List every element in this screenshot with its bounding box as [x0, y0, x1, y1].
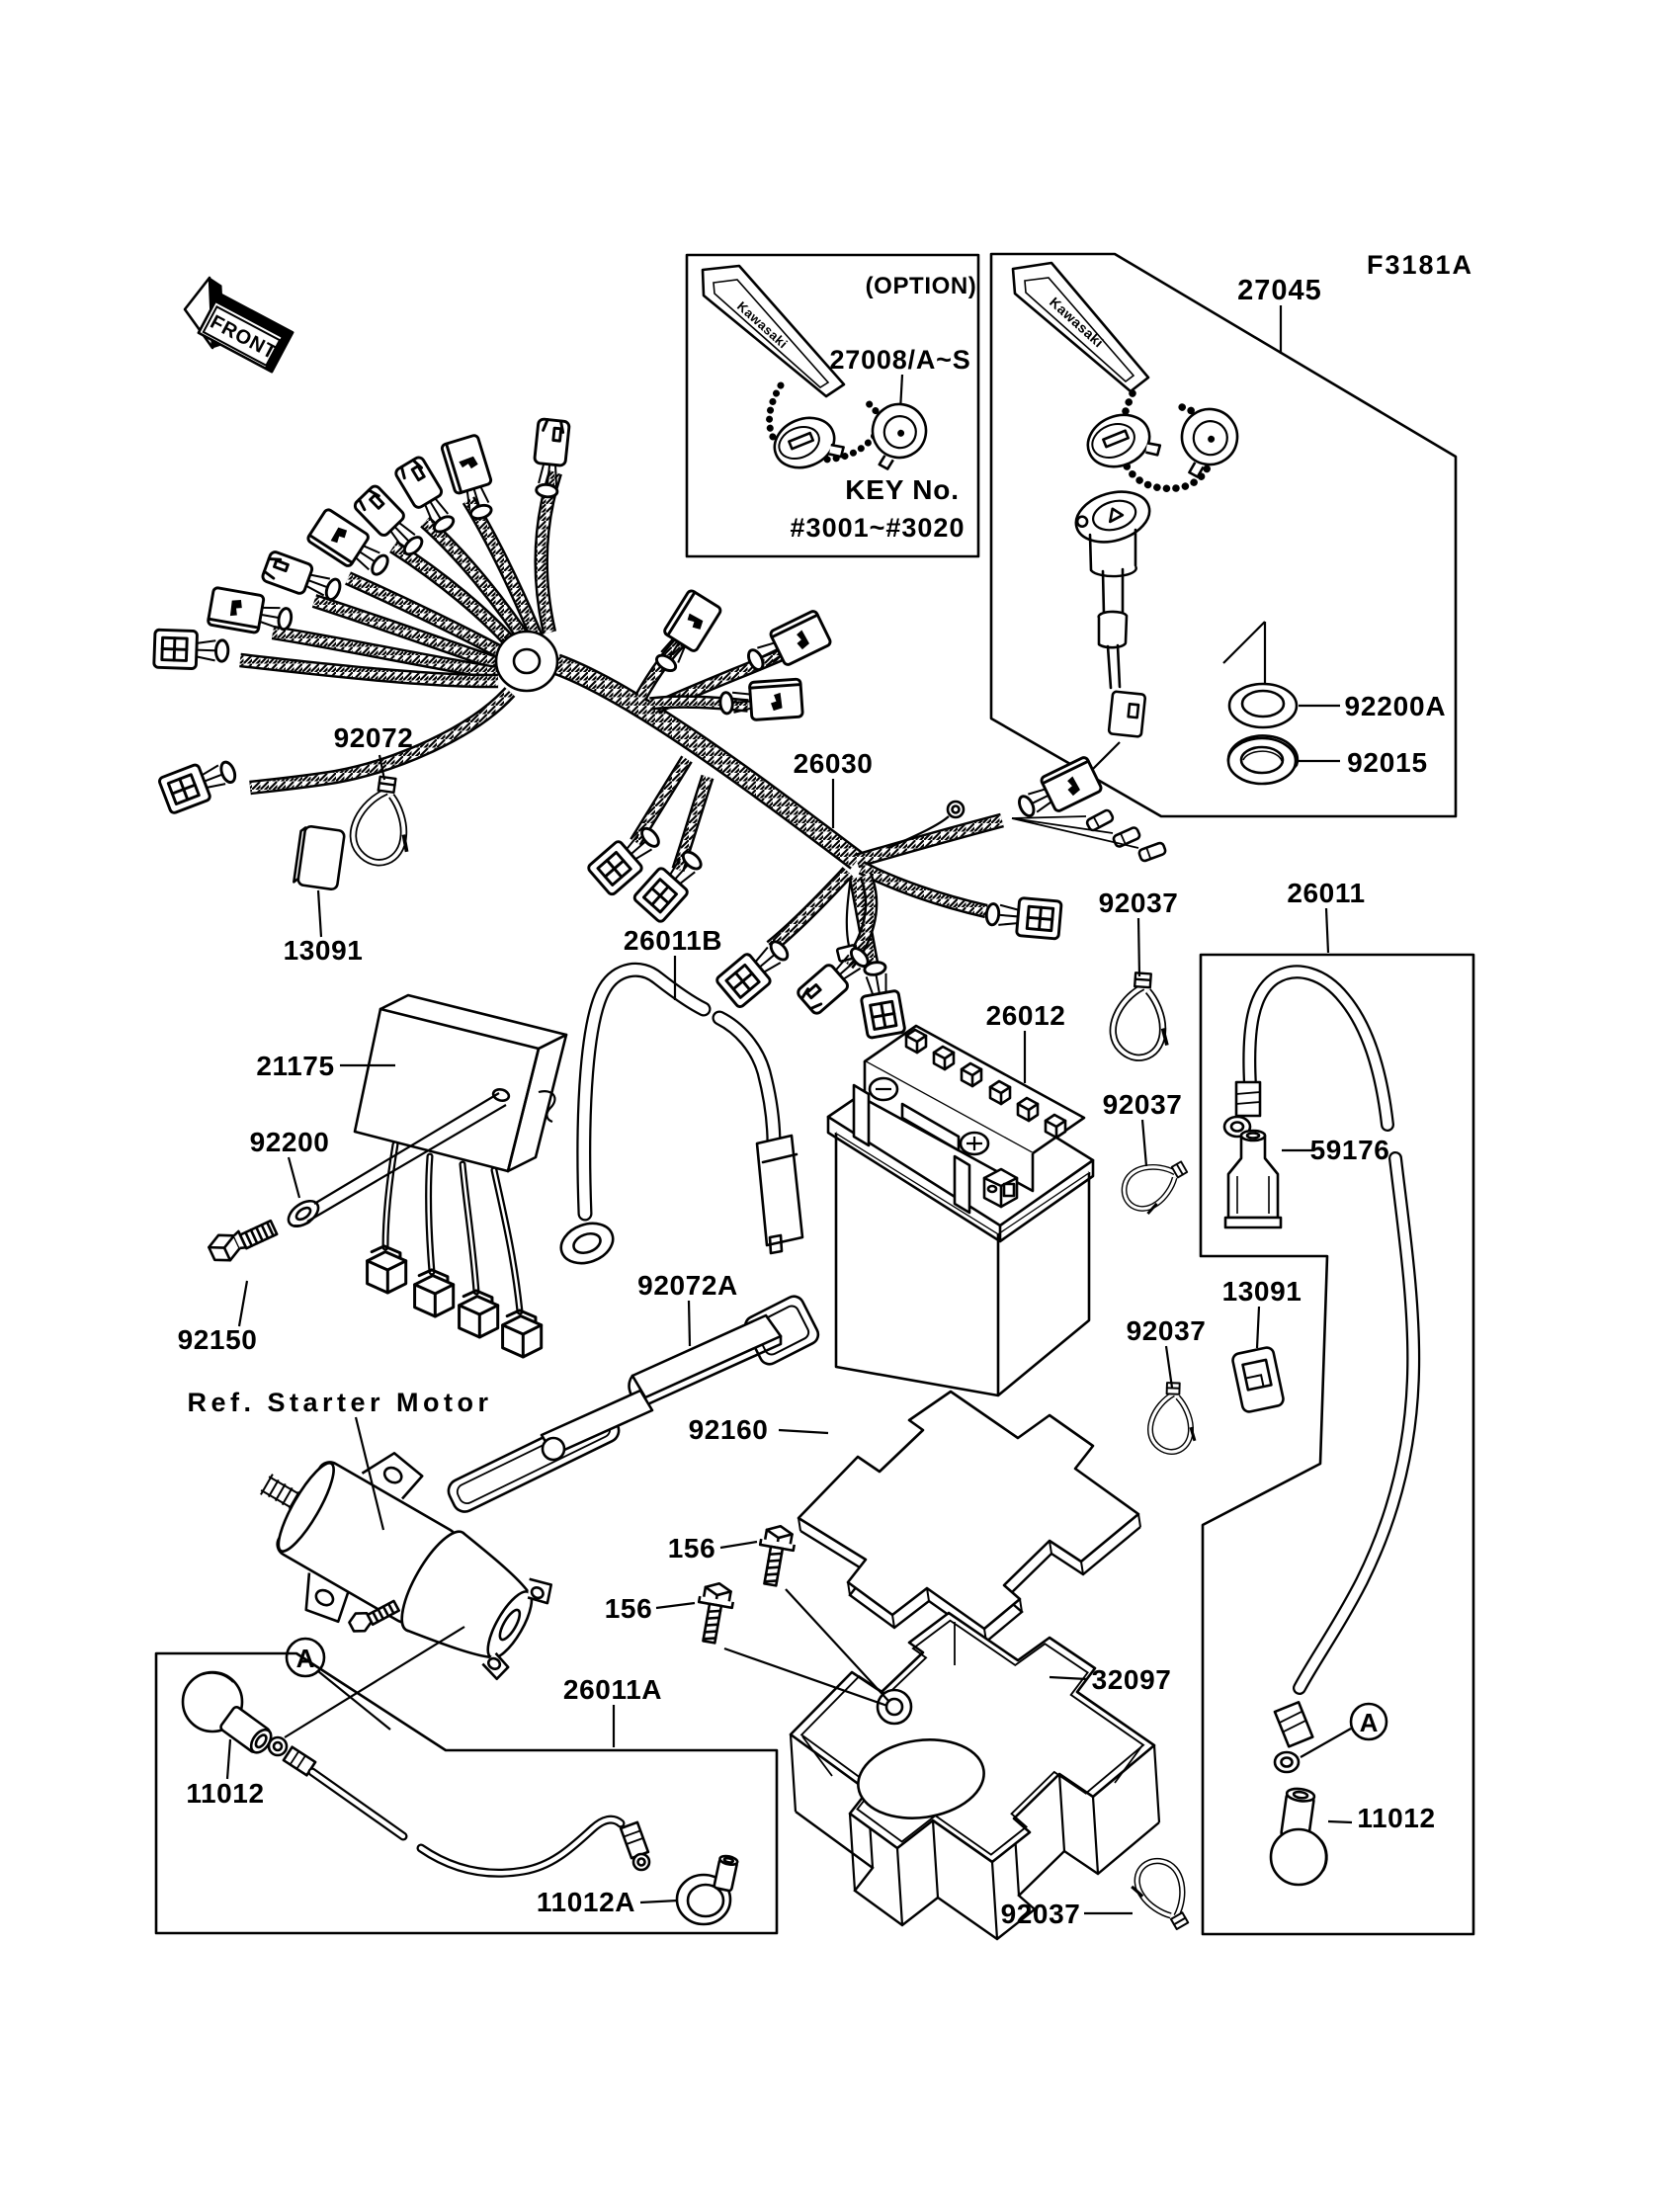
- svg-text:KEY No.: KEY No.: [845, 474, 960, 505]
- svg-text:92072: 92072: [334, 722, 414, 753]
- svg-text:A: A: [1360, 1708, 1379, 1737]
- svg-text:156: 156: [668, 1533, 716, 1563]
- svg-text:#3001~#3020: #3001~#3020: [791, 513, 966, 543]
- svg-text:92160: 92160: [689, 1414, 769, 1445]
- svg-text:13091: 13091: [284, 935, 364, 966]
- svg-text:F3181A: F3181A: [1367, 250, 1473, 280]
- svg-text:92037: 92037: [1127, 1315, 1207, 1346]
- svg-text:26030: 26030: [794, 748, 874, 779]
- svg-text:26011B: 26011B: [624, 925, 722, 956]
- svg-text:(OPTION): (OPTION): [866, 273, 977, 299]
- svg-text:11012A: 11012A: [537, 1887, 635, 1917]
- svg-text:Ref. Starter Motor: Ref. Starter Motor: [187, 1388, 492, 1417]
- svg-text:92037: 92037: [1001, 1899, 1081, 1929]
- svg-text:27008/A~S: 27008/A~S: [829, 345, 970, 375]
- svg-text:156: 156: [605, 1593, 653, 1624]
- svg-text:92200A: 92200A: [1345, 691, 1447, 721]
- svg-text:92072A: 92072A: [637, 1270, 738, 1301]
- svg-text:21175: 21175: [256, 1051, 334, 1081]
- svg-text:13091: 13091: [1222, 1276, 1302, 1307]
- svg-text:26011: 26011: [1287, 878, 1365, 908]
- svg-text:59176: 59176: [1310, 1135, 1390, 1165]
- svg-text:26011A: 26011A: [563, 1674, 662, 1705]
- svg-text:27045: 27045: [1237, 275, 1322, 306]
- svg-text:92015: 92015: [1347, 747, 1428, 778]
- svg-text:92037: 92037: [1099, 887, 1179, 918]
- svg-text:92037: 92037: [1103, 1089, 1183, 1120]
- svg-text:92200: 92200: [250, 1127, 330, 1157]
- svg-text:92150: 92150: [178, 1324, 258, 1355]
- svg-text:32097: 32097: [1092, 1664, 1172, 1695]
- svg-text:26012: 26012: [986, 1000, 1066, 1031]
- svg-text:11012: 11012: [1357, 1803, 1435, 1833]
- svg-text:11012: 11012: [186, 1778, 264, 1809]
